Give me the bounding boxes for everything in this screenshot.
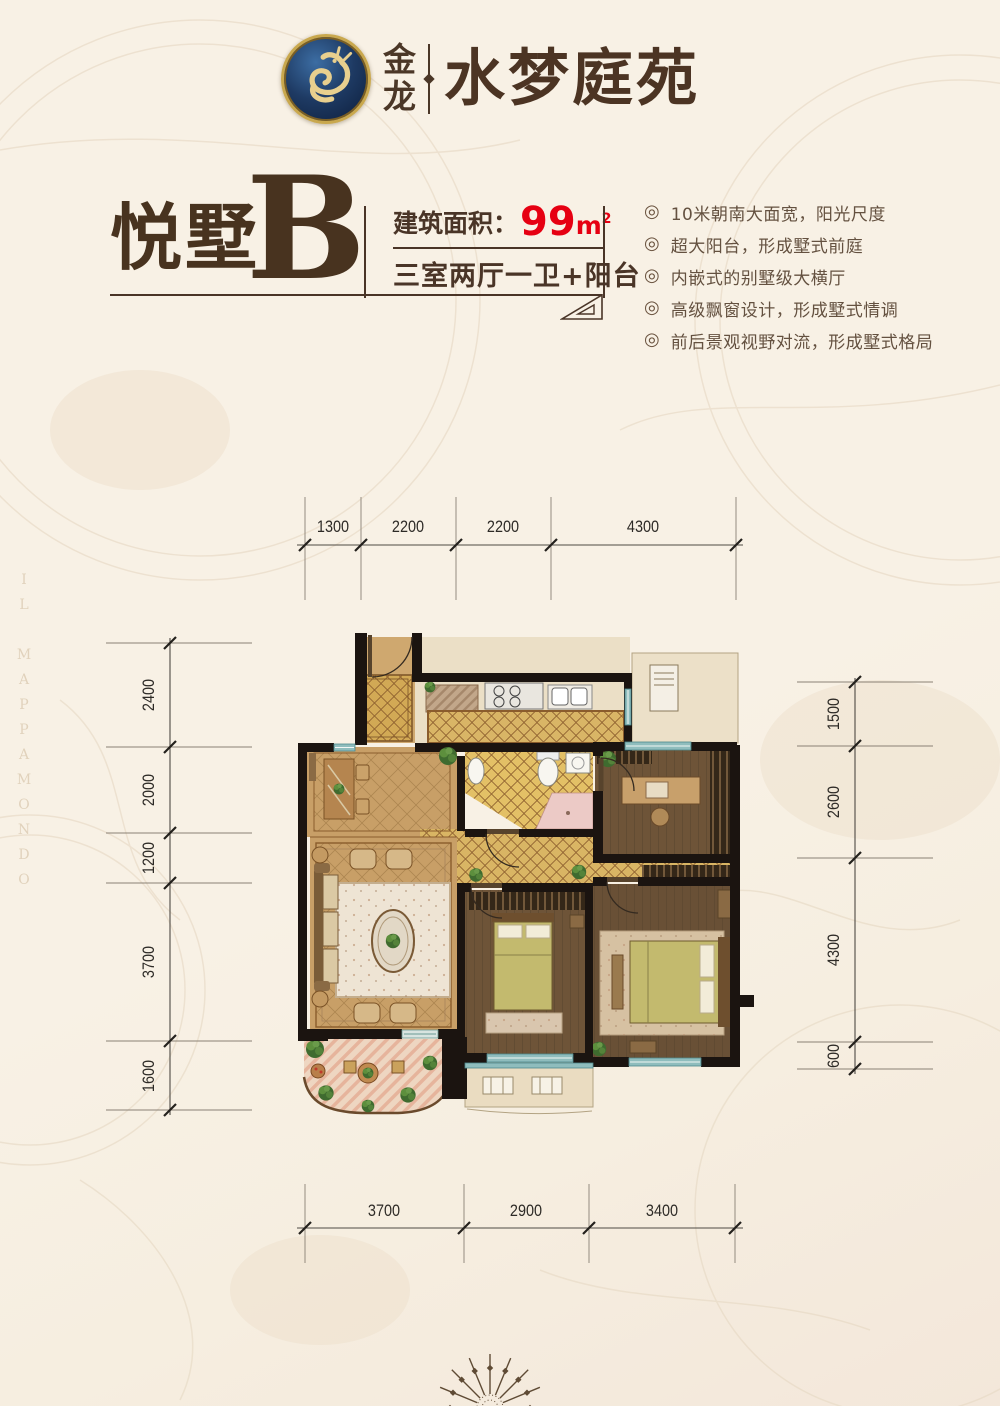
area-line: 建筑面积： 99 m 2 bbox=[393, 203, 612, 241]
compass-rose-icon bbox=[418, 1348, 562, 1406]
spec-divider-left bbox=[364, 206, 366, 298]
dim-left-1: 2400 bbox=[139, 679, 159, 711]
dim-bottom-1: 3700 bbox=[368, 1201, 400, 1221]
brand-char-bottom: 龙 bbox=[383, 79, 416, 116]
title-underline bbox=[110, 294, 602, 296]
feature-item: ◎ 高级飘窗设计，形成墅式情调 bbox=[644, 292, 933, 324]
north-bay bbox=[650, 665, 678, 711]
feature-item: ◎ 超大阳台，形成墅式前庭 bbox=[644, 228, 933, 260]
header: 金 龙 水梦庭苑 bbox=[281, 34, 700, 124]
bullet-icon: ◎ bbox=[644, 267, 660, 285]
feature-item: ◎ 前后景观视野对流，形成墅式格局 bbox=[644, 324, 933, 356]
dim-left-4: 3700 bbox=[139, 946, 159, 978]
dim-right-2: 2600 bbox=[824, 786, 844, 818]
triangle-flag-icon bbox=[560, 294, 606, 322]
area-value: 99 bbox=[520, 203, 576, 241]
bullet-icon: ◎ bbox=[644, 235, 660, 253]
spec-divider-right bbox=[603, 206, 605, 298]
dim-left-3: 1200 bbox=[139, 842, 159, 874]
dim-top-1: 1300 bbox=[317, 517, 349, 537]
dining-room bbox=[309, 753, 450, 831]
dim-bottom-2: 2900 bbox=[510, 1201, 542, 1221]
dim-right-4: 600 bbox=[824, 1044, 844, 1068]
bullet-icon: ◎ bbox=[644, 203, 660, 221]
floor-plan bbox=[290, 625, 755, 1120]
dim-right-1: 1500 bbox=[824, 698, 844, 730]
dim-left-2: 2000 bbox=[139, 774, 159, 806]
poster-page: IL MAPPAMONDO 金 龙 水梦庭苑 悦墅 B bbox=[0, 0, 1000, 1406]
dim-bottom-3: 3400 bbox=[646, 1201, 678, 1221]
entry-hall bbox=[362, 675, 412, 741]
dim-right-3: 4300 bbox=[824, 934, 844, 966]
dim-left-5: 1600 bbox=[139, 1060, 159, 1092]
dragon-emblem-icon bbox=[281, 34, 371, 124]
area-label: 建筑面积： bbox=[393, 206, 518, 241]
living-room bbox=[310, 837, 457, 1027]
unit-letter: B bbox=[246, 158, 366, 300]
feature-item: ◎ 10米朝南大面宽，阳光尺度 bbox=[644, 196, 933, 228]
area-unit: m bbox=[576, 211, 602, 241]
map-watermark-text: IL MAPPAMONDO bbox=[16, 572, 32, 897]
dim-top-2: 2200 bbox=[392, 517, 424, 537]
dim-top-3: 2200 bbox=[487, 517, 519, 537]
brand-divider bbox=[428, 44, 430, 114]
unit-name: 悦墅 bbox=[110, 198, 260, 277]
brand-char-top: 金 bbox=[383, 42, 416, 79]
feature-item: ◎ 内嵌式的别墅级大横厅 bbox=[644, 260, 933, 292]
bullet-icon: ◎ bbox=[644, 299, 660, 317]
spec-rule bbox=[393, 247, 605, 249]
dim-top-4: 4300 bbox=[627, 517, 659, 537]
project-name: 水梦庭苑 bbox=[444, 37, 700, 121]
brand-vertical-name: 金 龙 bbox=[383, 42, 416, 116]
feature-list: ◎ 10米朝南大面宽，阳光尺度 ◎ 超大阳台，形成墅式前庭 ◎ 内嵌式的别墅级大… bbox=[644, 196, 933, 356]
bullet-icon: ◎ bbox=[644, 331, 660, 349]
